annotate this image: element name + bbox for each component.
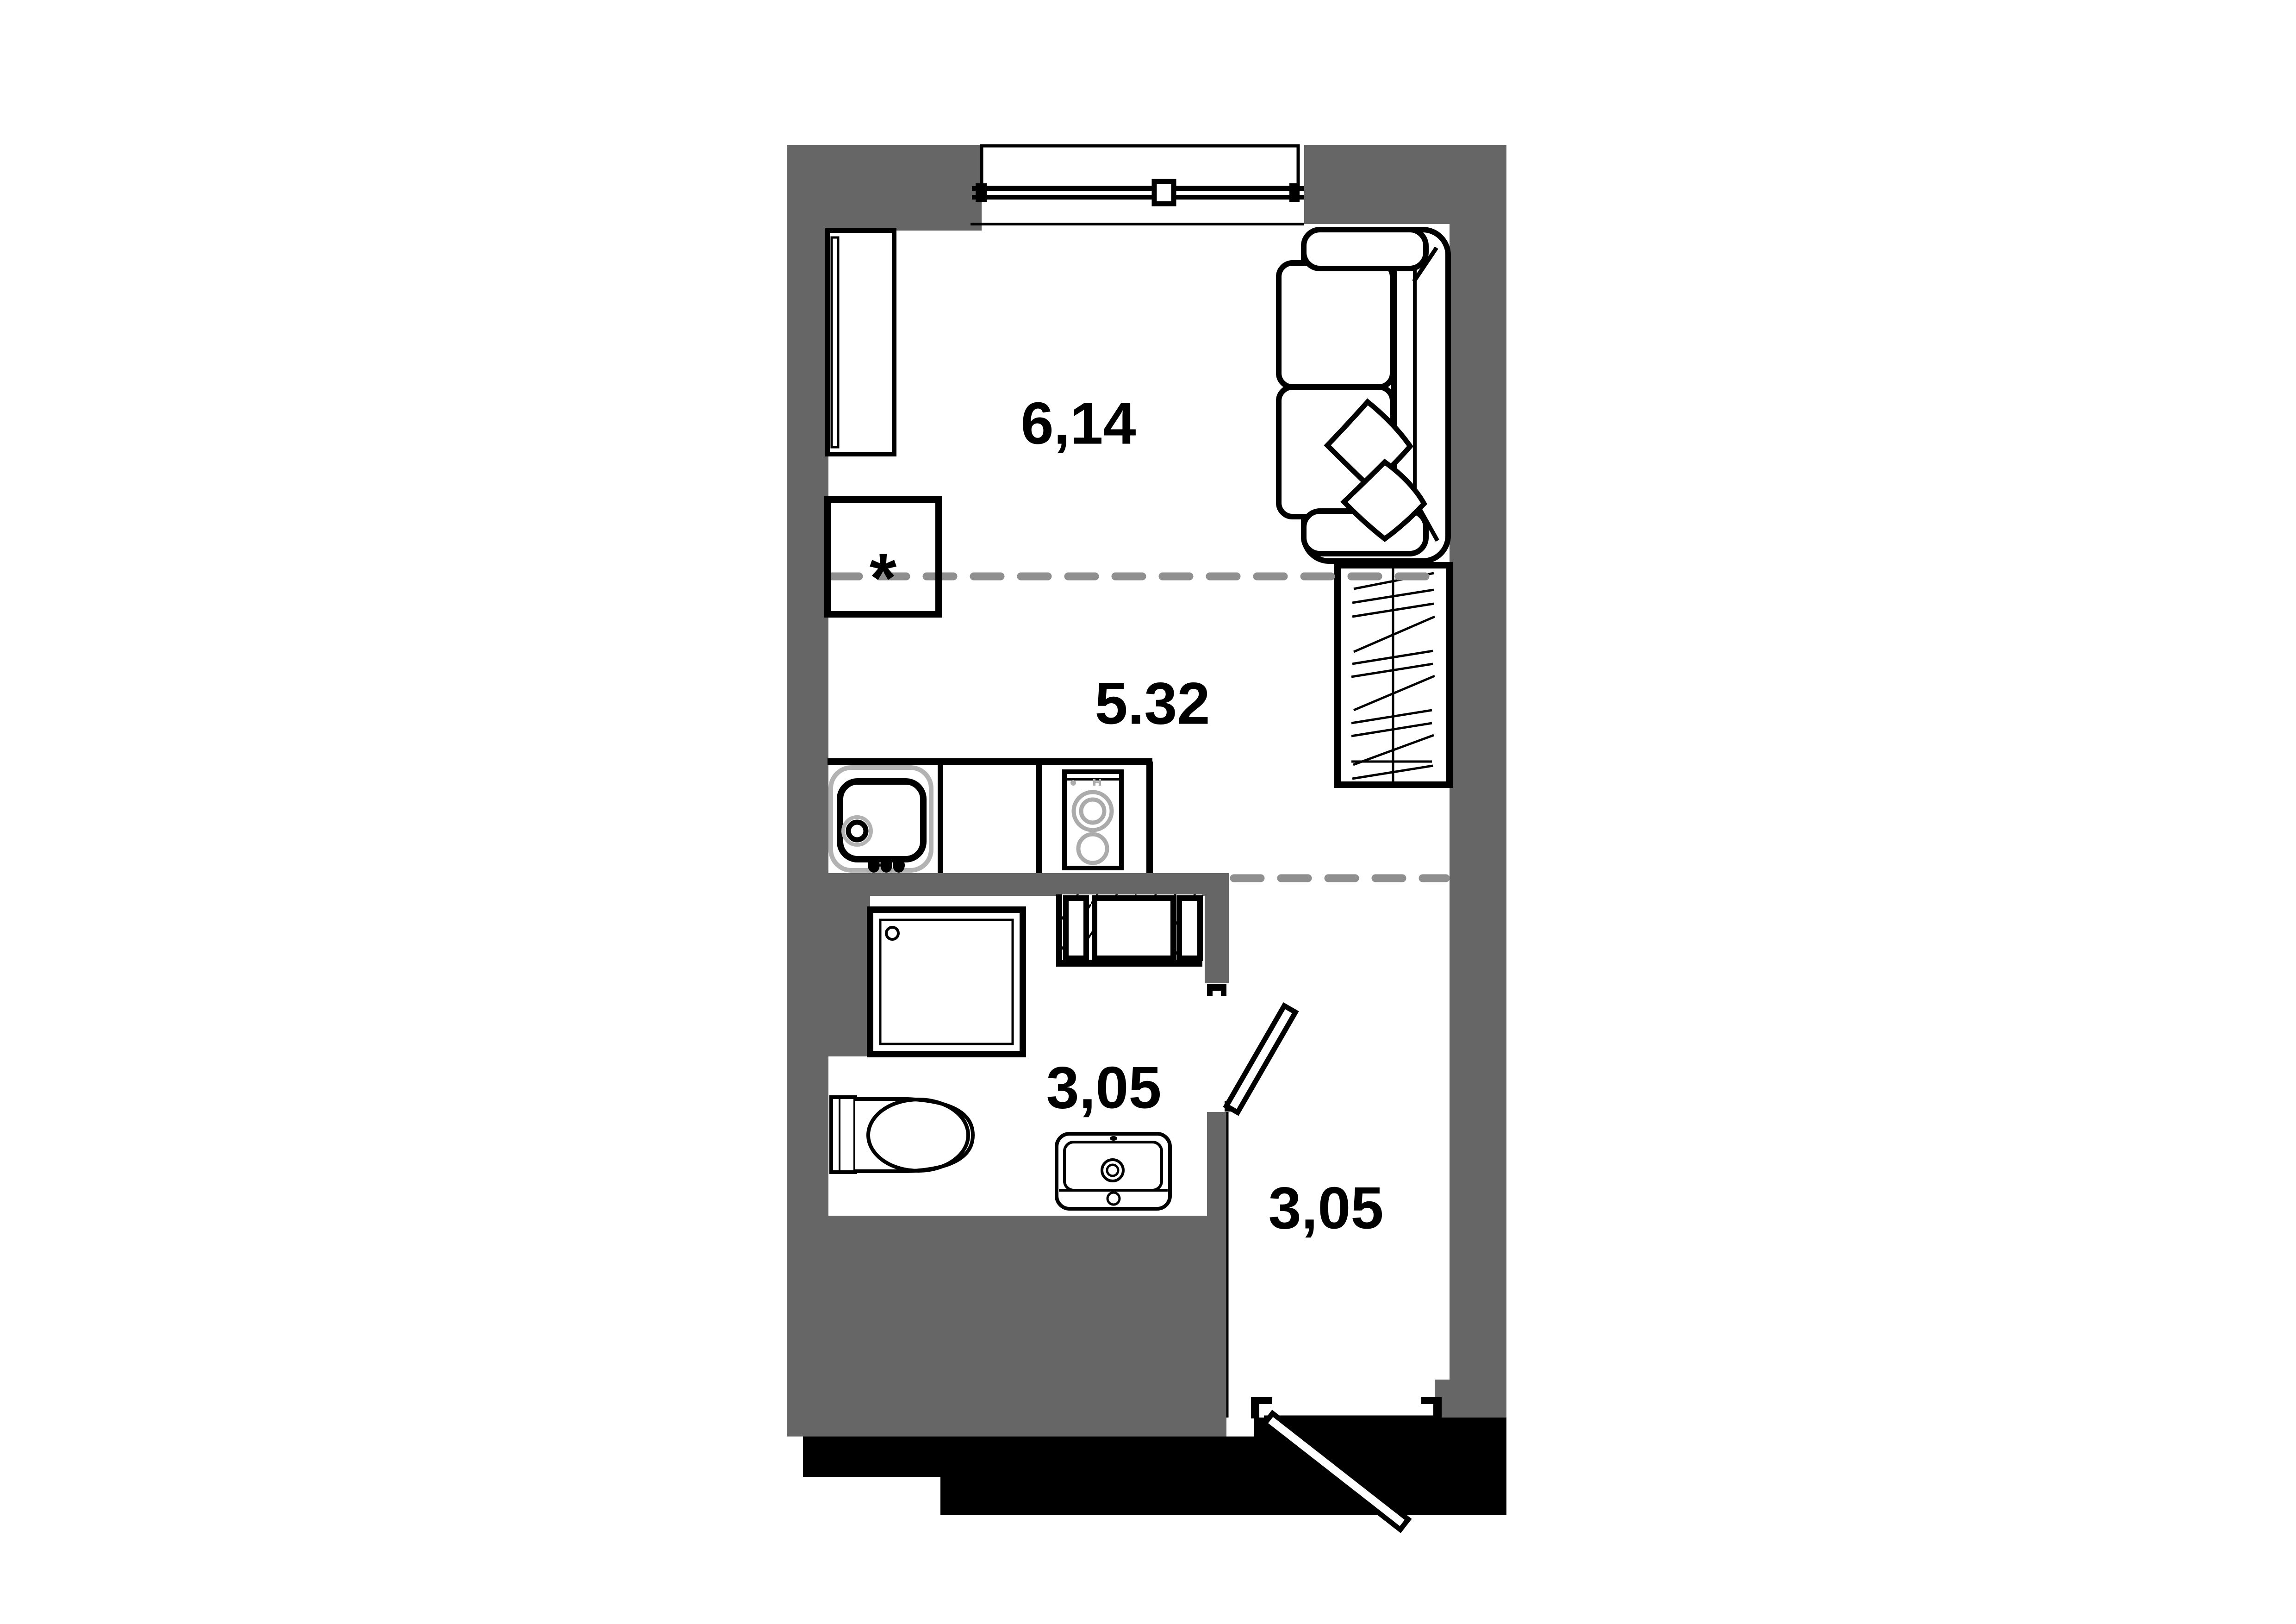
- wall-kitchen-bath: [828, 873, 1229, 896]
- vanity-outer: [1057, 1134, 1170, 1209]
- kitchen-area-label: 5.32: [1095, 671, 1210, 737]
- bathroom-door: [1207, 984, 1295, 1112]
- wall-bath-bottom: [787, 1216, 1226, 1437]
- wardrobe-door-track: [832, 237, 838, 447]
- living-area-label: 6,14: [1020, 391, 1136, 457]
- sink-faucet-dots: [868, 858, 905, 873]
- vent-niche-bar-left: [1066, 898, 1086, 958]
- wall-bathdoor-column-bottom: [1207, 1112, 1226, 1437]
- stove: [1064, 772, 1121, 868]
- hallway-area-label: 3,05: [1268, 1175, 1383, 1242]
- stove-body: [1064, 772, 1121, 868]
- window: [971, 146, 1304, 224]
- window-mullion: [1154, 181, 1174, 204]
- vanity-sink: [1057, 1134, 1170, 1209]
- window-end-cap-right: [1289, 183, 1300, 202]
- sofa-cushion-top: [1279, 263, 1393, 387]
- sofa-armrest-top: [1304, 230, 1426, 269]
- vent-niche-center-box: [1095, 898, 1173, 958]
- wall-shower-left-chunk: [787, 896, 870, 1056]
- sink-bowl: [840, 781, 923, 859]
- stove-knob-dot: [1070, 780, 1076, 786]
- bathroom-door-handle-bracket: [1207, 984, 1226, 996]
- entrance-jamb-right: [1421, 1397, 1442, 1418]
- window-sill-box: [982, 146, 1298, 187]
- vent-niche-bar-right: [1179, 898, 1200, 958]
- wall-bathdoor-column-top: [1205, 894, 1229, 983]
- vent-niche: [1056, 894, 1202, 967]
- sofa: [1279, 230, 1448, 561]
- asterisk-marker-icon: *: [870, 539, 897, 617]
- floor-plan-canvas: * 6,14 5.32 3,05 3,05: [0, 0, 2296, 1624]
- shower-cabin: [870, 910, 1023, 1054]
- kitchen-marker-block: *: [828, 500, 939, 617]
- sink-drain: [848, 822, 866, 840]
- bed: [1338, 565, 1450, 785]
- vanity-overflow-dot: [1110, 1136, 1117, 1141]
- wall-right: [1450, 145, 1506, 1418]
- vent-niche-left-border: [1056, 894, 1062, 966]
- bathroom-area-label: 3,05: [1046, 1055, 1161, 1121]
- wardrobe: [828, 231, 894, 454]
- toilet-tank: [831, 1097, 855, 1172]
- kitchen-sink: [831, 768, 931, 873]
- bathroom-door-leaf: [1226, 1006, 1295, 1112]
- wall-top-left: [787, 145, 982, 231]
- shower-outer: [870, 910, 1023, 1054]
- window-end-cap-left: [976, 183, 987, 202]
- toilet: [831, 1097, 973, 1172]
